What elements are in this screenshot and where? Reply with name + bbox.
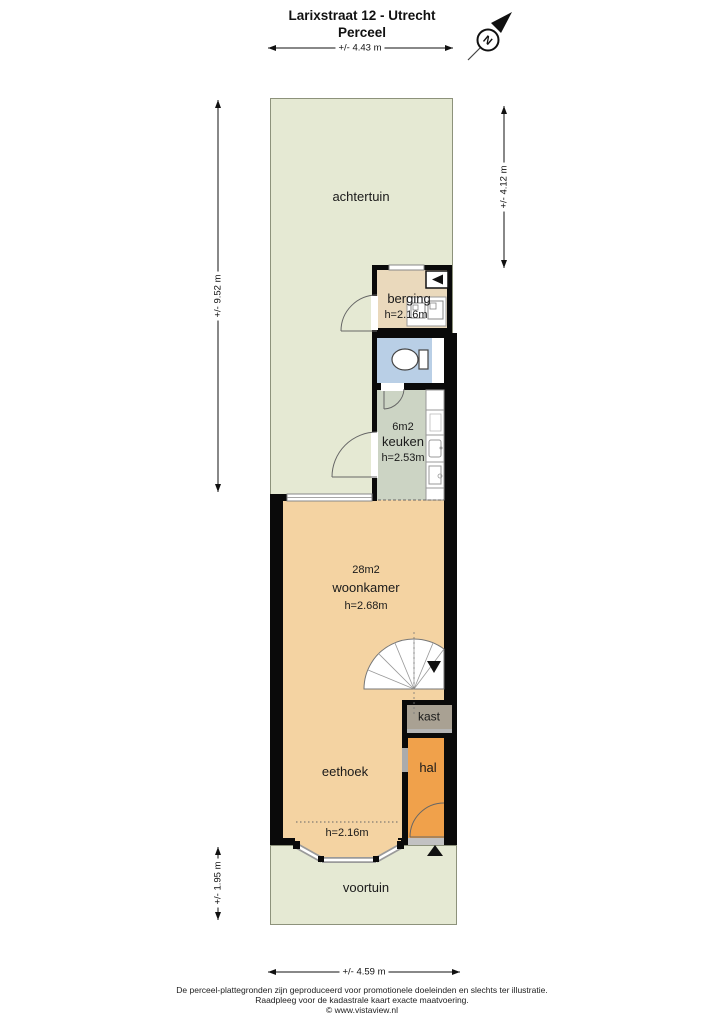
berging-ceiling-label: h=2.16m xyxy=(384,309,427,321)
wall-right xyxy=(444,333,457,845)
wall-toilet-bottom xyxy=(372,383,444,390)
wall-bottom-mid-stub xyxy=(398,838,408,845)
page-subtitle: Perceel xyxy=(0,25,724,40)
hal-label: hal xyxy=(419,761,436,775)
wall-toilet-top xyxy=(372,333,457,338)
wall-bottom-left-stub xyxy=(270,838,295,845)
wall-top-woonkamer xyxy=(283,494,377,501)
room-toilet xyxy=(377,338,432,383)
woonkamer-ceiling-label: h=2.68m xyxy=(344,600,387,612)
keuken-label: keuken xyxy=(382,435,424,449)
kast-label: kast xyxy=(418,710,440,723)
footer-disclaimer-line2: Raadpleeg voor de kadastrale kaart exact… xyxy=(0,995,724,1005)
toilet-fixture-zone xyxy=(432,338,444,383)
berging-label: berging xyxy=(387,292,430,306)
woonkamer-label: woonkamer xyxy=(332,581,399,595)
footer-copyright: © www.vistaview.nl xyxy=(0,1005,724,1015)
dim-top-label: +/- 4.43 m xyxy=(335,43,384,54)
dim-garden-left-label: +/- 9.52 m xyxy=(213,271,224,320)
footer-disclaimer-line1: De perceel-plattegronden zijn geproducee… xyxy=(0,985,724,995)
room-hal xyxy=(408,738,444,838)
page-title: Larixstraat 12 - Utrecht xyxy=(0,8,724,23)
floorplan-page: Larixstraat 12 - Utrecht Perceel xyxy=(0,0,724,1024)
wall-left xyxy=(270,494,283,845)
wall-toilet-left xyxy=(372,338,377,383)
dim-front-left-label: +/- 1.95 m xyxy=(213,858,224,907)
dim-garden-right-label: +/- 4.12 m xyxy=(499,162,510,211)
hal-doorway xyxy=(402,748,408,772)
keuken-area-label: 6m2 xyxy=(392,421,413,433)
bay-ceiling-label: h=2.16m xyxy=(325,827,368,839)
front-door-threshold xyxy=(408,838,444,845)
achtertuin-label: achtertuin xyxy=(332,190,389,204)
keuken-ceiling-label: h=2.53m xyxy=(381,452,424,464)
kast-door-front xyxy=(407,729,452,733)
wall-keuken-left xyxy=(372,390,377,500)
woonkamer-area-label: 28m2 xyxy=(352,564,380,576)
dim-bottom-label: +/- 4.59 m xyxy=(339,967,388,978)
eethoek-label: eethoek xyxy=(322,765,368,779)
voortuin-label: voortuin xyxy=(343,881,389,895)
